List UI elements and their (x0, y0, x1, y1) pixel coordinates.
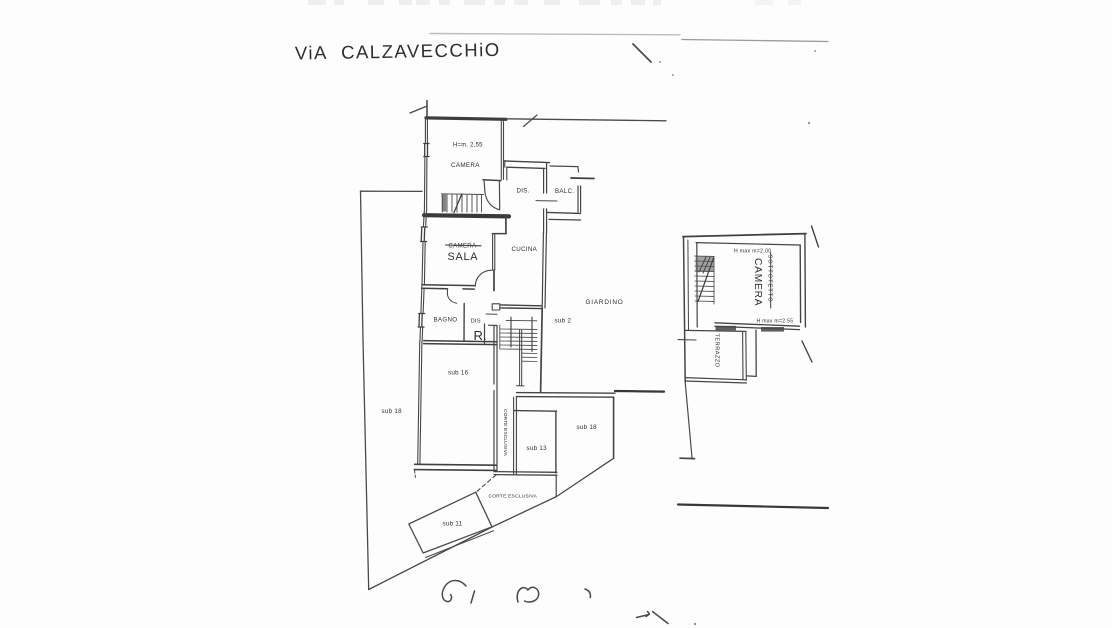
svg-text:H max m=2.55: H max m=2.55 (757, 319, 794, 325)
svg-text:TERRAZZO: TERRAZZO (714, 334, 720, 368)
svg-text:ViA CALZAVECCHiO: ViA CALZAVECCHiO (295, 39, 501, 64)
svg-text:H max m=2.00: H max m=2.00 (734, 249, 771, 255)
svg-text:GIARDINO: GIARDINO (586, 299, 624, 306)
svg-text:CAMERA: CAMERA (752, 258, 763, 306)
svg-text:sub 2: sub 2 (555, 318, 572, 325)
svg-text:SALA: SALA (448, 251, 479, 263)
svg-text:sub 18: sub 18 (382, 408, 403, 415)
svg-text:sub 16: sub 16 (448, 370, 469, 377)
svg-text:SOTTOTETTO: SOTTOTETTO (767, 255, 773, 303)
svg-text:BALC.: BALC. (555, 188, 574, 195)
svg-text:DIS: DIS (471, 319, 481, 325)
svg-text:H=m. 2,55: H=m. 2,55 (453, 143, 483, 149)
svg-text:sub 18: sub 18 (577, 424, 598, 431)
svg-text:CUCINA: CUCINA (512, 246, 538, 253)
svg-text:CAMERA: CAMERA (451, 162, 480, 169)
svg-text:sub 13: sub 13 (527, 445, 548, 452)
svg-text:CORTE ESCLUSIVA: CORTE ESCLUSIVA (502, 409, 508, 457)
svg-text:DIS.: DIS. (517, 188, 530, 195)
svg-text:CORTE ESCLUSIVA: CORTE ESCLUSIVA (489, 494, 538, 500)
svg-text:sub 11: sub 11 (443, 521, 463, 528)
svg-text:BAGNO: BAGNO (434, 317, 458, 324)
